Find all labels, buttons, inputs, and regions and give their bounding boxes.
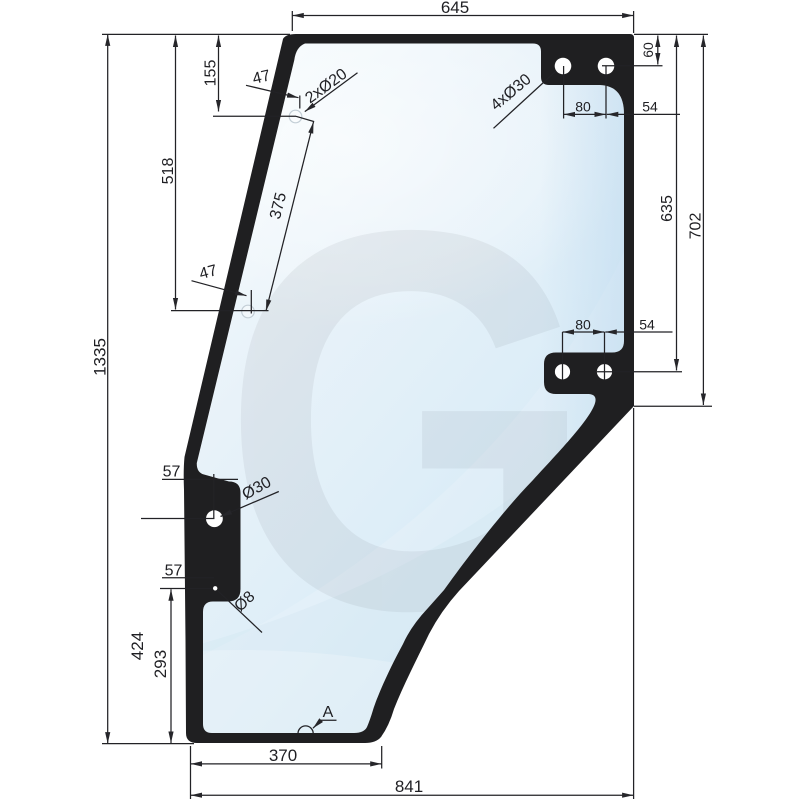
svg-text:424: 424 bbox=[128, 632, 147, 660]
svg-text:57: 57 bbox=[163, 464, 181, 481]
svg-text:702: 702 bbox=[688, 213, 705, 240]
svg-text:80: 80 bbox=[575, 317, 591, 333]
svg-text:60: 60 bbox=[640, 42, 656, 58]
svg-text:635: 635 bbox=[659, 195, 676, 222]
svg-text:1335: 1335 bbox=[91, 338, 110, 376]
svg-text:57: 57 bbox=[165, 563, 183, 580]
svg-text:370: 370 bbox=[269, 746, 297, 765]
svg-text:293: 293 bbox=[151, 650, 170, 678]
svg-text:80: 80 bbox=[575, 99, 591, 115]
svg-text:54: 54 bbox=[642, 99, 658, 115]
svg-text:54: 54 bbox=[639, 317, 655, 333]
svg-text:518: 518 bbox=[160, 158, 177, 185]
svg-text:155: 155 bbox=[203, 60, 220, 87]
svg-text:645: 645 bbox=[441, 0, 469, 17]
svg-text:A: A bbox=[323, 704, 334, 721]
svg-text:841: 841 bbox=[395, 777, 423, 796]
